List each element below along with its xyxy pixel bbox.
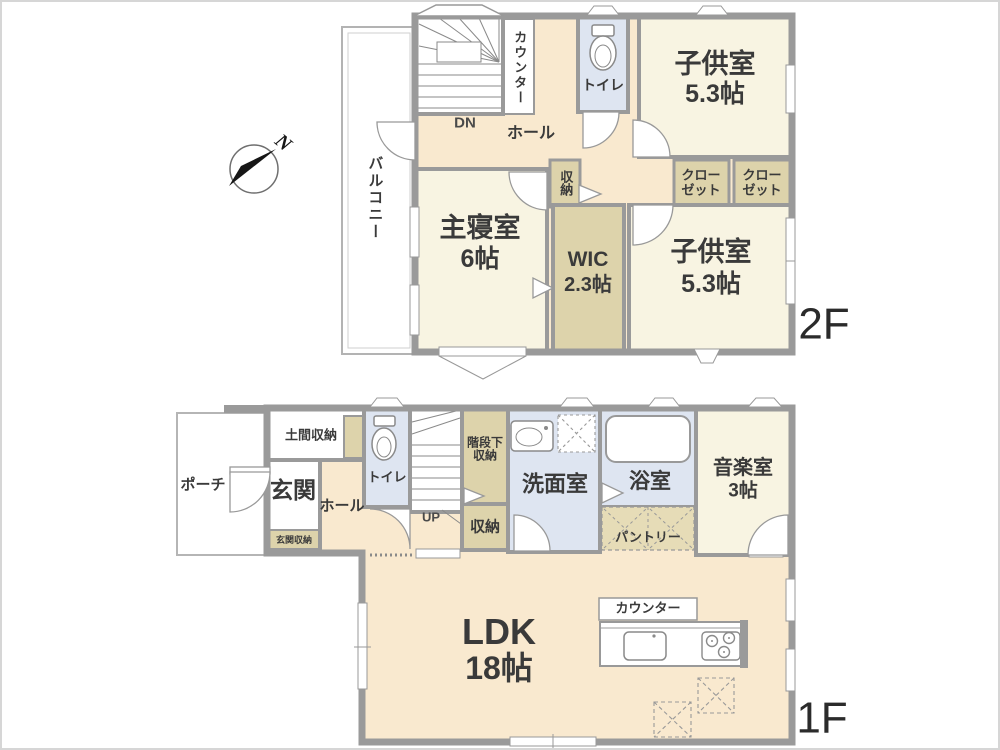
toilet-icon-2f [590,25,616,70]
hall-2f-label: ホール [507,125,555,143]
stairs-down-label: DN [454,116,476,133]
music-room-size: 3帖 [728,480,758,501]
floor-1f-label: 1F [796,693,847,742]
hall-1f-label: ホール [319,499,364,516]
kids-room-top-name: 子供室 [675,49,756,79]
toilet-icon-1f [372,416,396,460]
balcony-label: バルコニー [366,156,383,241]
closet-1-line2: ゼット [681,183,720,198]
awning-window-kids-top [696,6,728,15]
toilet-1f-label: トイレ [367,471,406,486]
stairs-up-label: UP [422,511,440,526]
hall-ldk-opening [368,551,414,560]
kids-room-top-size: 5.3帖 [685,80,745,108]
bathroom-label: 浴室 [629,470,671,494]
doma-storage-label: 土間収納 [285,429,337,444]
sink-icon [511,421,553,451]
counter-2f-label: カウンター [512,31,527,106]
porch-label: ポーチ [180,478,225,495]
doma-closet [344,416,364,458]
entrance-label: 玄関 [270,478,316,504]
washroom-label: 洗面室 [522,473,588,498]
under-stair-line2: 収納 [467,450,503,463]
floor-plan-page: バルコニー カウンター DN ホール トイレ 子供室 5.3帖 収納 クロー ゼ… [0,0,1000,750]
awning-window-toilet-2f [587,6,619,15]
wall-over-porch [224,405,270,413]
stairs-1f-room [410,408,462,512]
under-stair-storage-label: 階段下 収納 [467,437,503,464]
wic-size: 2.3帖 [564,274,612,296]
washer-pad-icon [558,415,595,452]
closet-2-line2: ゼット [742,183,781,198]
toilet-2f-label: トイレ [582,78,624,94]
bathtub-icon [606,416,690,462]
closet-2-line1: クロー [742,168,781,183]
counter-1f-label: カウンター [615,602,680,617]
kitchen-wall-stub [740,620,748,668]
closet-1-line1: クロー [681,168,720,183]
kitchen-sink-icon [624,632,666,660]
floor-2f-label: 2F [798,299,849,348]
music-room-name: 音楽室 [713,457,773,479]
bay-window-stairs [414,5,504,16]
compass-icon [229,145,278,193]
kids-room-bottom-size: 5.3帖 [681,270,741,298]
stairs-2f-room [415,16,503,114]
master-bedroom-size: 6帖 [461,245,500,273]
closet-1-label: クロー ゼット [681,168,720,197]
ldk-name: LDK [462,612,536,652]
storage-1f-label: 収納 [470,520,500,537]
closet-2-label: クロー ゼット [742,168,781,197]
entrance-storage-label: 玄関収納 [276,535,312,545]
wic-name: WIC [568,248,609,272]
master-bedroom-name: 主寝室 [440,213,521,243]
pantry-label: パントリー [615,531,681,546]
storage-2f-label: 収納 [558,170,573,196]
ldk-size: 18帖 [465,651,533,687]
kids-room-bottom-name: 子供室 [671,237,752,267]
stove-icon [702,632,740,660]
